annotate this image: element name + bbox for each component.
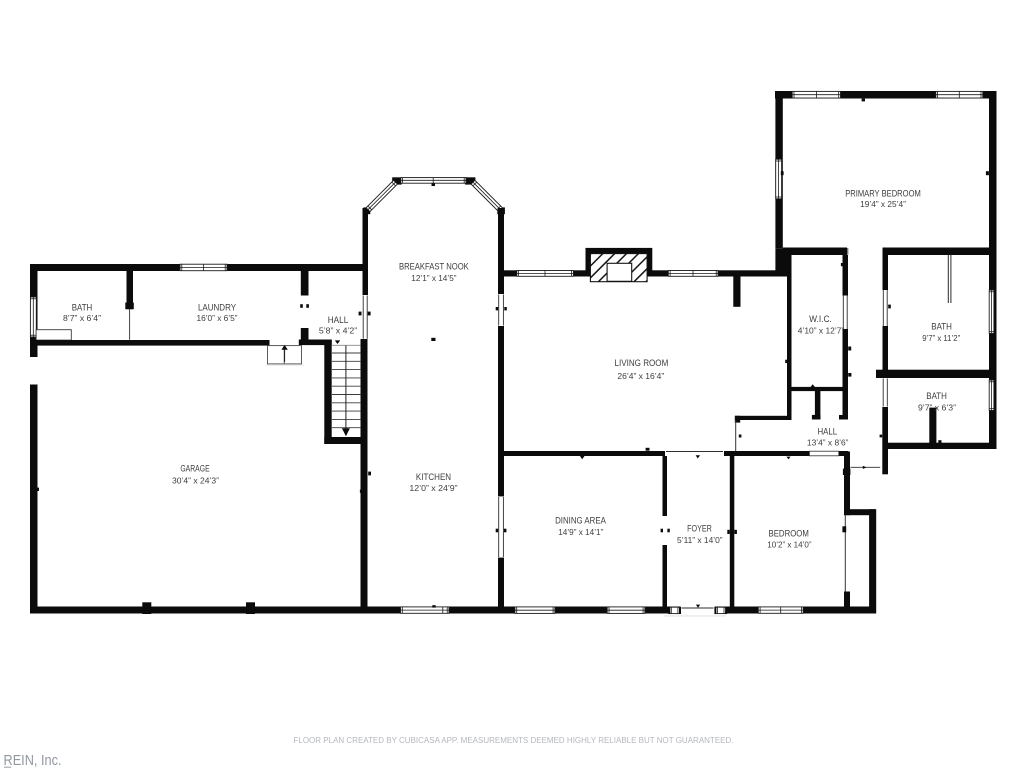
svg-text:FOYER: FOYER: [687, 523, 712, 533]
svg-text:9’7” x 6’3”: 9’7” x 6’3”: [918, 403, 956, 413]
svg-text:REIN, Inc.: REIN, Inc.: [4, 753, 62, 768]
svg-text:BREAKFAST NOOK: BREAKFAST NOOK: [399, 261, 469, 271]
svg-text:9’7” x 11’2”: 9’7” x 11’2”: [922, 333, 960, 343]
svg-text:16’0” x 6’5”: 16’0” x 6’5”: [197, 313, 238, 323]
svg-text:FLOOR PLAN CREATED BY CUBICASA: FLOOR PLAN CREATED BY CUBICASA APP. MEAS…: [294, 736, 734, 745]
svg-text:12’1” x 14’5”: 12’1” x 14’5”: [411, 273, 456, 283]
svg-text:14’9” x 14’1”: 14’9” x 14’1”: [558, 527, 603, 537]
svg-text:BATH: BATH: [72, 303, 93, 313]
svg-text:KITCHEN: KITCHEN: [416, 472, 451, 482]
svg-text:BATH: BATH: [931, 321, 952, 331]
svg-text:BEDROOM: BEDROOM: [769, 529, 809, 539]
svg-text:26’4” x 16’4”: 26’4” x 16’4”: [617, 371, 664, 381]
svg-text:DINING AREA: DINING AREA: [555, 516, 607, 526]
svg-text:19’4” x 25’4”: 19’4” x 25’4”: [860, 199, 906, 209]
svg-text:5’11” x 14’0”: 5’11” x 14’0”: [677, 535, 723, 545]
svg-text:HALL: HALL: [818, 426, 838, 436]
svg-text:12’0” x 24’9”: 12’0” x 24’9”: [409, 483, 457, 493]
svg-text:4’10” x 12’7”: 4’10” x 12’7”: [798, 326, 844, 336]
svg-text:PRIMARY BEDROOM: PRIMARY BEDROOM: [845, 188, 921, 198]
svg-text:8’7” x 6’4”: 8’7” x 6’4”: [63, 313, 101, 323]
svg-text:LAUNDRY: LAUNDRY: [198, 303, 236, 313]
svg-text:5’8” x 4’2”: 5’8” x 4’2”: [319, 326, 357, 336]
svg-text:W.I.C.: W.I.C.: [809, 314, 832, 324]
svg-text:HALL: HALL: [328, 315, 349, 325]
svg-text:13’4” x 8’6”: 13’4” x 8’6”: [807, 438, 849, 448]
svg-text:BATH: BATH: [926, 391, 947, 401]
svg-text:LIVING ROOM: LIVING ROOM: [615, 358, 669, 368]
svg-text:GARAGE: GARAGE: [180, 464, 209, 474]
svg-text:10’2” x 14’0”: 10’2” x 14’0”: [767, 539, 811, 549]
svg-text:30’4” x 24’3”: 30’4” x 24’3”: [172, 475, 219, 485]
